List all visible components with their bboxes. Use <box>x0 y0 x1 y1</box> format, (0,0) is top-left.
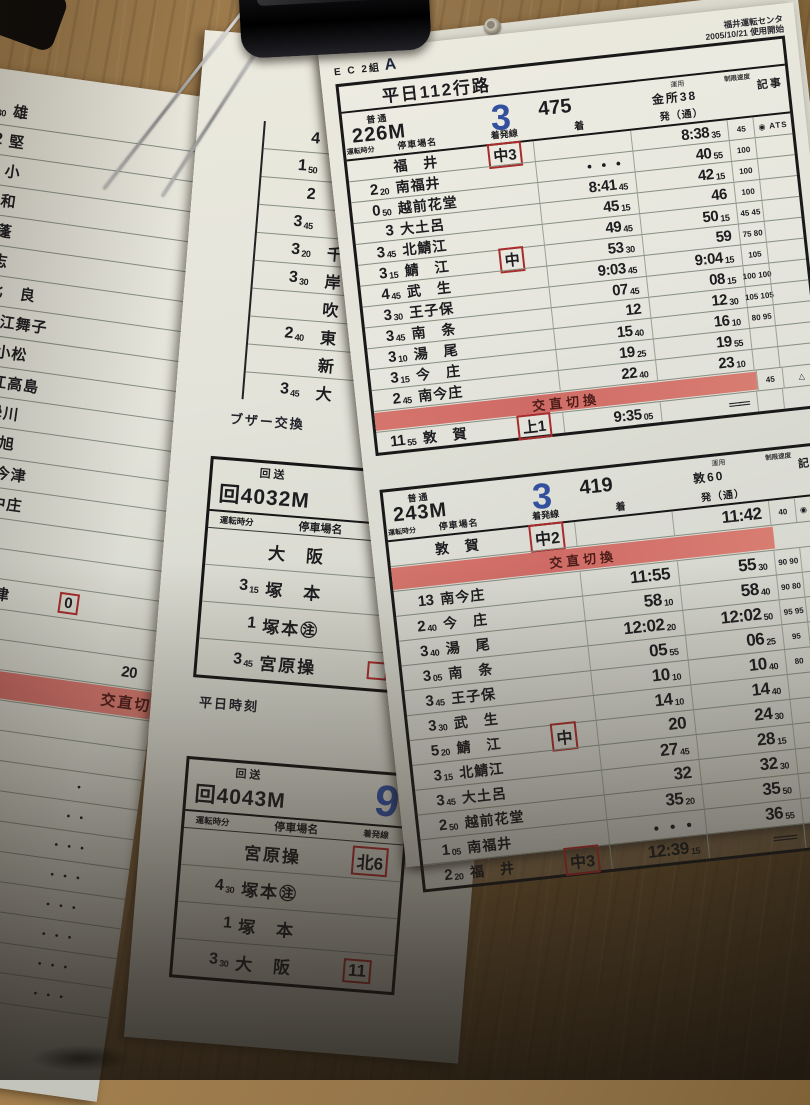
cell-s: 新 <box>304 349 346 379</box>
cell-v: 90 90 <box>774 548 802 575</box>
deadhead2-rows: 宮原操北6430塚本㊟1塚 本330大 阪11 <box>172 828 403 992</box>
cell-t: 1 <box>199 602 260 643</box>
cell-box: 11 <box>342 952 393 992</box>
track-number-red-box: 0 <box>58 592 81 616</box>
t1-rows: 福 井中38:383545◉ ATS220南福井・・・4055100050越前花… <box>347 113 810 452</box>
cell-box: 中3 <box>564 845 612 874</box>
cell-t <box>181 828 242 869</box>
col-label-departure: 発（通） <box>700 485 745 505</box>
track-number-red-box: 北6 <box>351 845 390 877</box>
cell-box: 北6 <box>351 842 402 882</box>
col-label-track: 着発線 <box>531 507 559 523</box>
trainset-number: 419 <box>578 474 614 500</box>
cell-d <box>87 895 125 929</box>
cell-v <box>801 796 810 823</box>
cell-t: 330 <box>172 939 233 980</box>
track-number-red-box: 中3 <box>564 844 602 876</box>
cell-d <box>91 865 129 899</box>
cell-v: 90 80 <box>776 573 804 600</box>
col-label-speed-limit: 制限速度 <box>724 73 751 83</box>
cell-box <box>0 943 37 977</box>
cell-s: 東 <box>306 321 348 351</box>
cell-n: △ <box>782 364 810 388</box>
col-label-arrival: 着 <box>615 497 627 513</box>
cell-d <box>95 836 133 870</box>
cell-s: 大 阪 <box>230 943 345 988</box>
track-number-red-box: 11 <box>342 958 372 984</box>
col-label-runtime: 運転時分 <box>346 144 375 157</box>
deadhead-table-4043m: 9 回送 回4043M 運転時分 停車場名 着発線 宮原操北6430塚本㊟1塚 … <box>169 756 412 995</box>
col-label-runtime: 運転時分 <box>388 525 417 538</box>
cell-s: 宮原操 <box>254 643 369 688</box>
binder-hole-eyelet <box>484 18 501 35</box>
cell-v <box>756 389 784 412</box>
cell-t <box>205 528 266 569</box>
cell-d <box>82 925 120 959</box>
cell-t: 1155 <box>376 428 420 452</box>
col-label-station: 停車場名 <box>397 135 438 152</box>
crew-group-mark: A <box>384 56 397 74</box>
t2-rows: 敦 賀中211:4240◉ ATS交直切換13南今庄11:55553090 90… <box>388 494 810 889</box>
crew-group-text: E C 2組 <box>334 62 382 78</box>
cell-n <box>782 385 810 409</box>
binder-clip <box>238 0 432 59</box>
cell-box <box>348 878 399 918</box>
cell-v <box>790 697 810 724</box>
cell-box <box>345 915 396 955</box>
timetable-226m: 平日112行路 普通 226M 3 475 着 運用 金所38 発（通） 制限速… <box>335 35 810 456</box>
cell-v <box>798 772 810 799</box>
cell-v <box>787 672 810 699</box>
cell-v: 80 <box>784 647 810 674</box>
col-label-track: 着発線 <box>352 826 401 842</box>
cell-t: 220 <box>423 861 467 889</box>
col-label-speed-limit: 制限速度 <box>765 452 792 462</box>
col-label-runtime: 運転時分 <box>184 813 241 829</box>
crew-group-label: E C 2組A <box>333 56 397 81</box>
cell-d <box>74 984 112 1018</box>
cell-v: 95 <box>782 622 810 649</box>
col-label-departure: 発（通） <box>659 104 704 124</box>
track-number-red-box: 上1 <box>517 412 553 440</box>
cell-box: 上1 <box>517 413 565 438</box>
cell-n <box>799 544 810 572</box>
cell-t: 345 <box>196 638 257 679</box>
cell-v <box>793 722 810 749</box>
timetable-card-main: E C 2組A 福井運転センタ 2005/10/21 使用開始 平日112行路 … <box>318 2 810 867</box>
cell-n <box>802 569 810 597</box>
binder-clip-body <box>238 0 432 59</box>
cell-v <box>795 747 810 774</box>
trainset-number: 475 <box>537 95 573 121</box>
cell-n: ◉ ATS <box>794 494 810 522</box>
cell-t: 345 <box>244 372 304 404</box>
cell-box <box>0 972 33 1006</box>
cell-t: 1 <box>175 902 236 943</box>
col-label-runtime: 運転時分 <box>208 513 265 529</box>
col-label-station: 停車場名 <box>438 515 479 532</box>
cell-d <box>78 954 116 988</box>
col-label-remarks: 記事 <box>797 453 810 472</box>
cell-t: 315 <box>202 565 263 606</box>
timetable-243m: 普通 243M 3 419 着 運用 敦60 発（通） 制限速度 記事 運転時分… <box>379 441 810 892</box>
cell-s: 大 <box>301 377 343 407</box>
col-label-track: 着発線 <box>490 126 518 142</box>
col-label-arrival: 着 <box>573 117 585 133</box>
cell-v: 95 95 <box>779 598 807 625</box>
cell-v: 40 <box>768 498 796 525</box>
cell-t: 430 <box>178 865 239 906</box>
col-label-remarks: 記事 <box>756 74 784 93</box>
operation-number: 敦60 <box>692 467 725 487</box>
